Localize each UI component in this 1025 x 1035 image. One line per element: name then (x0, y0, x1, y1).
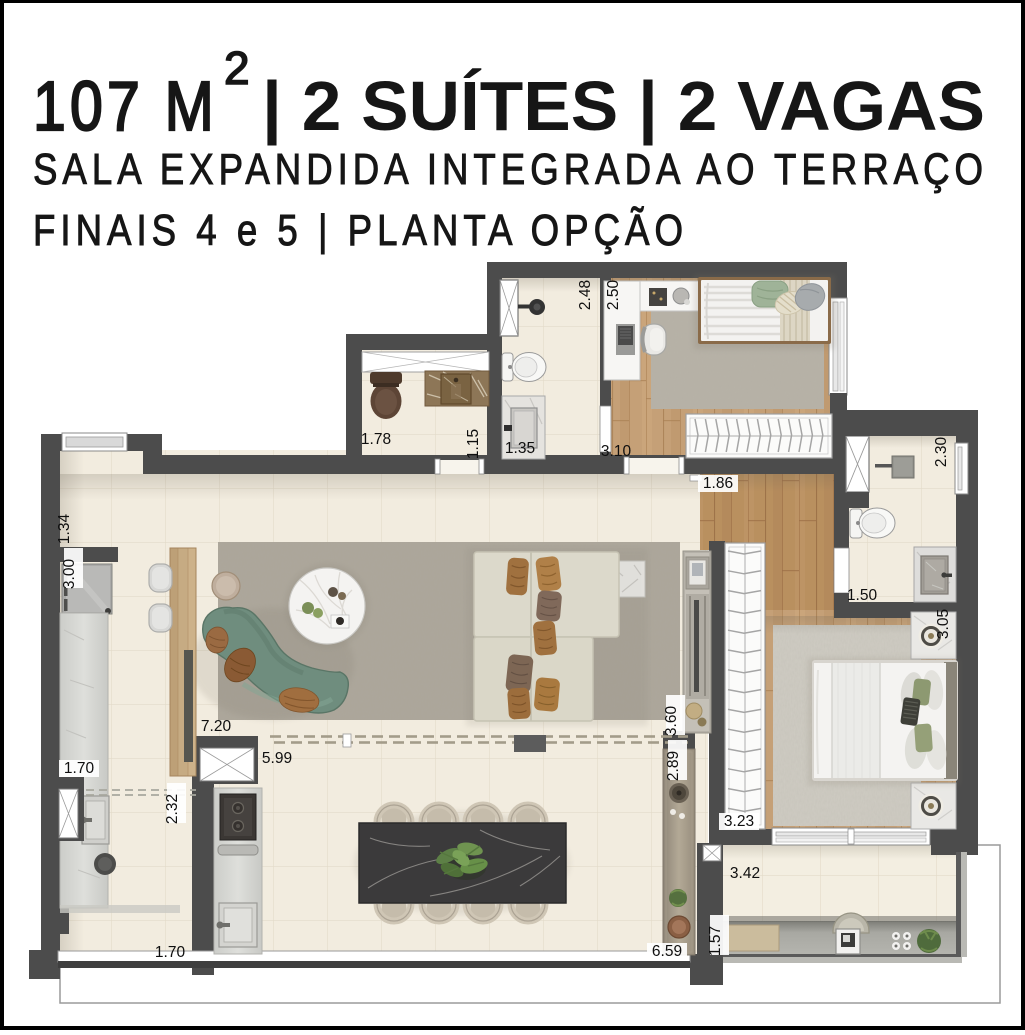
svg-text:FINAIS 4 e 5 | PLANTA OPÇÃO: FINAIS 4 e 5 | PLANTA OPÇÃO (33, 205, 688, 255)
svg-text:1.86: 1.86 (703, 475, 733, 492)
svg-text:1.34: 1.34 (56, 514, 73, 545)
svg-text:3.10: 3.10 (601, 443, 632, 460)
svg-text:SALA EXPANDIDA INTEGRADA AO TE: SALA EXPANDIDA INTEGRADA AO TERRAÇO (33, 145, 988, 194)
svg-text:1.35: 1.35 (505, 440, 535, 457)
svg-text:3.23: 3.23 (724, 813, 754, 830)
svg-text:107 M: 107 M (33, 67, 218, 145)
svg-text:| 2 SUÍTES | 2 VAGAS: | 2 SUÍTES | 2 VAGAS (262, 67, 985, 146)
svg-text:1.57: 1.57 (707, 926, 724, 956)
svg-text:3.60: 3.60 (663, 706, 680, 737)
svg-text:3.00: 3.00 (61, 559, 78, 590)
svg-text:5.99: 5.99 (262, 750, 292, 767)
svg-text:3.05: 3.05 (935, 609, 952, 639)
svg-text:2.32: 2.32 (164, 794, 181, 824)
svg-text:1.70: 1.70 (64, 760, 95, 777)
svg-text:2.50: 2.50 (605, 280, 622, 311)
svg-text:1.15: 1.15 (465, 429, 482, 459)
svg-text:6.59: 6.59 (652, 943, 682, 960)
svg-text:1.50: 1.50 (847, 587, 878, 604)
svg-text:2.30: 2.30 (933, 437, 950, 468)
svg-text:1.78: 1.78 (361, 431, 391, 448)
svg-text:3.42: 3.42 (730, 865, 760, 882)
svg-text:2: 2 (224, 42, 250, 94)
svg-text:1.70: 1.70 (155, 944, 186, 961)
svg-text:2.89: 2.89 (665, 751, 682, 781)
svg-text:2.48: 2.48 (577, 280, 594, 310)
svg-text:7.20: 7.20 (201, 718, 232, 735)
